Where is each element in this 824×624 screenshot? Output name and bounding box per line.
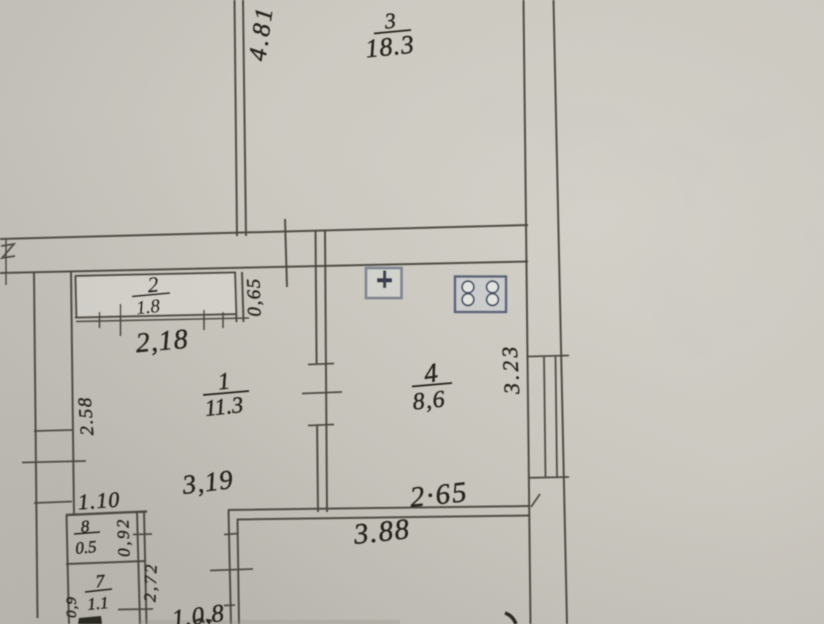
svg-text:1.10: 1.10 (77, 487, 121, 515)
svg-text:0,9: 0,9 (64, 596, 80, 618)
svg-text:0.5: 0.5 (75, 537, 98, 558)
svg-text:8,6: 8,6 (411, 386, 447, 415)
svg-text:3.88: 3.88 (351, 513, 412, 551)
svg-text:11.3: 11.3 (204, 392, 245, 421)
svg-text:2,18: 2,18 (134, 324, 190, 360)
svg-text:2,72: 2,72 (140, 562, 160, 602)
svg-text:1.1: 1.1 (87, 593, 110, 614)
svg-text:1.8: 1.8 (135, 296, 161, 319)
svg-text:2·65: 2·65 (408, 476, 470, 514)
svg-text:0,65: 0,65 (243, 277, 265, 317)
svg-text:3,19: 3,19 (180, 464, 236, 500)
svg-text:2.58: 2.58 (75, 396, 99, 437)
svg-text:3.23: 3.23 (497, 343, 525, 396)
svg-text:18.3: 18.3 (364, 29, 416, 63)
svg-text:0,92: 0,92 (113, 517, 133, 557)
